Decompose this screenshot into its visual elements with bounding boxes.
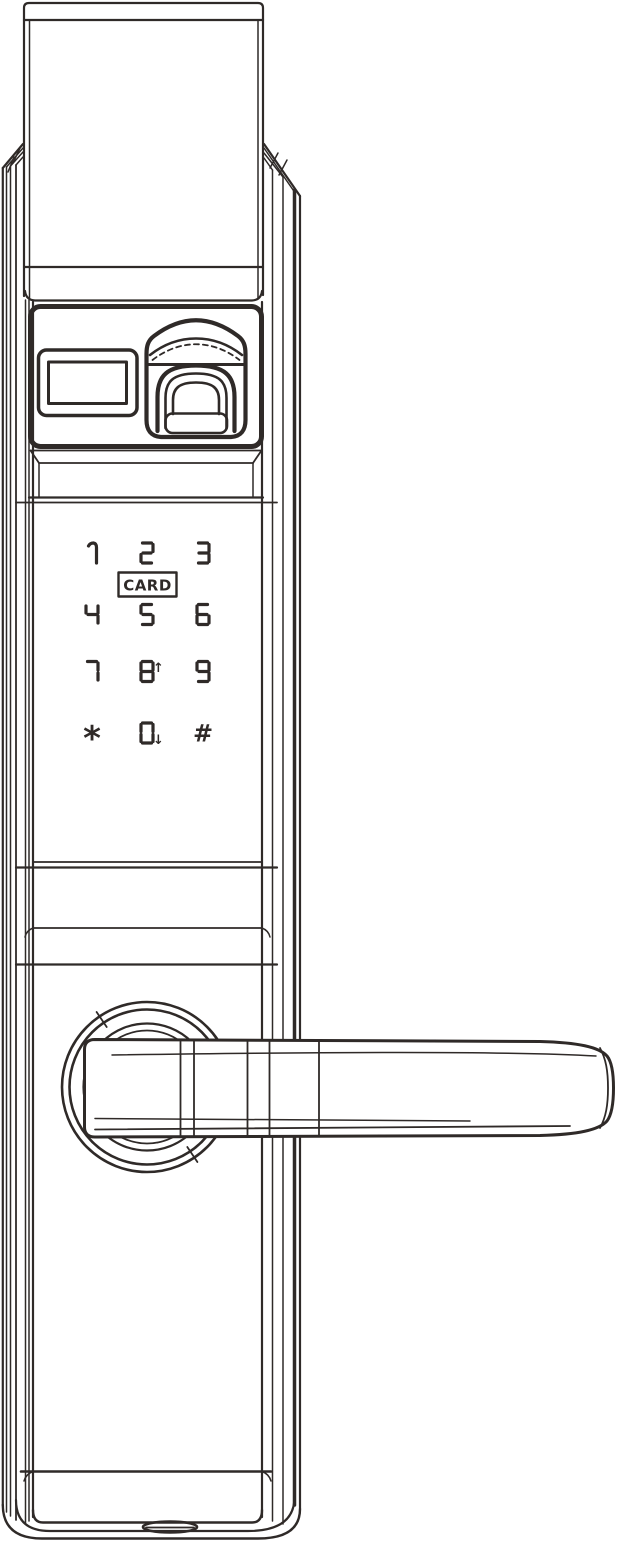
top-cap: [24, 3, 263, 301]
keypad-key-star: *: [83, 719, 101, 759]
keypad-plate-seams: [16, 862, 277, 965]
keypad: ↑*↓#: [83, 543, 213, 759]
door-lock-line-art: ↑*↓# CARD: [0, 0, 617, 1541]
handle-lever: [85, 1040, 614, 1138]
door-lock-drawing: ↑*↓# CARD: [0, 0, 617, 1541]
keypad-key-2: [141, 543, 153, 563]
keypad-key-0: ↓: [141, 723, 164, 748]
keypad-key-5: [141, 605, 153, 625]
card-label-text: CARD: [123, 577, 172, 595]
keypad-key-7: [88, 662, 99, 681]
card-slot-label: CARD: [119, 573, 177, 597]
keypad-key-9: [197, 662, 209, 682]
keypad-key-1: [89, 543, 97, 563]
display-window: [39, 350, 138, 416]
up-arrow-icon: ↑: [153, 661, 164, 676]
svg-text:#: #: [193, 720, 213, 748]
svg-text:*: *: [83, 719, 101, 759]
keypad-key-4: [86, 606, 98, 623]
keypad-key-8: ↑: [141, 661, 164, 682]
keypad-key-6: [197, 605, 209, 625]
fingerprint-reader: [147, 320, 246, 437]
fingerprint-panel: [31, 307, 262, 447]
keypad-key-hash: #: [193, 720, 213, 748]
down-arrow-icon: ↓: [153, 733, 164, 748]
keypad-key-3: [199, 543, 210, 563]
bevel-band: [16, 451, 277, 503]
